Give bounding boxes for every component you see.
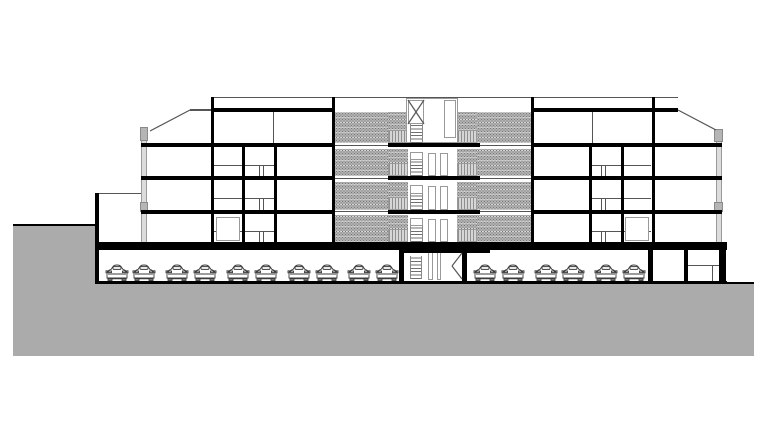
ground-floor-slab <box>95 242 727 250</box>
gallery-slab-line-2b <box>480 211 531 212</box>
gallery-hatch-f2-left <box>335 182 388 210</box>
gallery-hatch-f3-right <box>477 149 531 176</box>
stair-landing-door-f2 <box>410 185 423 194</box>
entry-door-right-wing <box>625 217 649 241</box>
door-jamb-right-f1a <box>601 232 602 242</box>
tower-door-f1a <box>428 219 436 242</box>
balcony-railing-f3-right <box>457 163 477 176</box>
car-icon <box>347 263 371 282</box>
stair-landing-door-f1 <box>410 218 423 226</box>
car-icon <box>105 263 129 282</box>
slab-f4-center <box>388 143 480 147</box>
tower-door-f3b <box>440 153 448 176</box>
storage-divider-line <box>712 266 713 282</box>
slab-f2-left-wing <box>141 210 335 214</box>
tower-wall-right-parking <box>462 250 467 281</box>
car-icon <box>375 263 399 282</box>
slab-f4-right-wing <box>531 143 722 147</box>
wall-left-mid-a <box>242 147 245 242</box>
penthouse-door <box>444 100 456 138</box>
gallery-slab-line-4a <box>335 145 388 146</box>
roof-slope-right <box>678 110 716 130</box>
car-icon <box>561 263 585 282</box>
door-jamb-left-f3a <box>259 166 260 176</box>
gallery-slab-line-3b <box>480 178 531 179</box>
storage-wall-a <box>648 250 653 281</box>
tower-door-f3a <box>428 153 436 176</box>
parapet-block-right <box>714 129 723 142</box>
storage-shelf-line <box>688 265 719 266</box>
wall-left-mid-b <box>274 147 277 242</box>
door-jamb-left-f2b <box>263 199 264 210</box>
gallery-hatch-f1-left-top <box>388 215 408 229</box>
attic-mullion-right <box>592 112 593 143</box>
balcony-railing-f3-left <box>388 163 408 176</box>
slab-f4-left-wing <box>141 143 335 147</box>
wall-right-mid-b <box>621 147 624 242</box>
wall-left-inner <box>211 97 214 243</box>
annex-roof-line <box>99 193 141 194</box>
balcony-railing-f2-right <box>457 197 477 210</box>
car-icon <box>534 263 558 282</box>
parapet-block-left <box>140 127 148 141</box>
door-jamb-right-f1b <box>605 232 606 242</box>
car-icon <box>501 263 525 282</box>
roof-slope-left <box>150 110 190 131</box>
gallery-hatch-f3-left <box>335 149 388 176</box>
balcony-railing-f4-left <box>388 130 408 143</box>
door-jamb-left-f3b <box>263 166 264 176</box>
tower-wall-left-parking <box>399 250 404 281</box>
wall-gallery-left <box>332 97 335 242</box>
car-icon <box>132 263 156 282</box>
storage-wall-b <box>684 250 688 281</box>
car-icon <box>622 263 646 282</box>
gallery-hatch-f2-right <box>477 182 531 210</box>
gallery-hatch-f1-right-top <box>457 215 477 229</box>
door-jamb-right-f3a <box>601 166 602 176</box>
door-jamb-left-f1b <box>263 232 264 242</box>
door-jamb-right-f3b <box>605 166 606 176</box>
car-icon <box>226 263 250 282</box>
wall-right-mid-a <box>589 147 592 242</box>
door-jamb-right-f2a <box>601 199 602 210</box>
tower-door-parking-a <box>428 252 433 280</box>
attic-mullion-left <box>273 112 274 143</box>
gallery-hatch-f3-left-top <box>388 149 408 163</box>
stair-run-f3 <box>410 160 423 176</box>
section-drawing-canvas <box>0 0 768 432</box>
slab-f2-right-wing <box>531 210 722 214</box>
parking-wall-right <box>719 250 726 282</box>
grade-line-left <box>13 224 96 226</box>
top-fascia-right <box>532 108 678 112</box>
car-icon <box>594 263 618 282</box>
stair-run-parking <box>410 256 422 279</box>
gallery-slab-line-4b <box>480 145 531 146</box>
tower-door-parking-b <box>437 252 441 280</box>
tower-door-f1b <box>440 219 448 242</box>
gallery-hatch-f1-right <box>477 215 531 242</box>
door-jamb-left-f2a <box>259 199 260 210</box>
stair-run-f4 <box>410 124 423 143</box>
door-jamb-left-f1a <box>259 232 260 242</box>
parking-door-leaf-b <box>452 266 462 279</box>
wall-gallery-right <box>531 97 534 242</box>
gallery-slab-line-2a <box>335 211 388 212</box>
balcony-railing-f1-left <box>388 229 408 242</box>
grade-line-right <box>727 282 754 284</box>
car-icon <box>254 263 278 282</box>
terrain-mass <box>13 284 754 356</box>
stair-landing-door-f3 <box>410 152 423 160</box>
stair-run-f2 <box>410 194 423 210</box>
balcony-railing-f2-left <box>388 197 408 210</box>
balcony-railing-f1-right <box>457 229 477 242</box>
car-icon <box>473 263 497 282</box>
tower-door-f2b <box>440 186 448 210</box>
stair-run-f1 <box>410 226 423 242</box>
slab-f3-center <box>388 176 480 180</box>
gallery-hatch-f2-left-top <box>388 182 408 197</box>
car-icon <box>165 263 189 282</box>
roof-hatch-panel <box>408 100 424 124</box>
gallery-hatch-f4-left <box>335 112 388 143</box>
door-head-right-f3 <box>589 165 651 166</box>
tower-slab-step <box>402 250 490 253</box>
tower-door-f2a <box>428 186 436 210</box>
slab-f3-right-wing <box>531 176 722 180</box>
door-jamb-right-f2b <box>605 199 606 210</box>
gallery-hatch-f3-right-top <box>457 149 477 163</box>
roof-edge-left <box>190 109 212 111</box>
annex-retaining-wall <box>95 193 99 282</box>
top-fascia-left <box>211 108 335 112</box>
gallery-hatch-f4-right-top <box>458 112 477 130</box>
car-icon <box>287 263 311 282</box>
gallery-slab-line-3a <box>335 178 388 179</box>
parking-floor-slab <box>95 281 727 284</box>
slab-f2-center <box>388 210 480 214</box>
balcony-railing-f4-right <box>457 130 477 143</box>
parking-door-leaf-a <box>452 253 462 266</box>
car-icon <box>315 263 339 282</box>
slab-f3-left-wing <box>141 176 335 180</box>
terrain-left-plateau <box>13 226 95 284</box>
door-head-right-f2 <box>589 198 651 199</box>
wall-right-inner <box>652 97 655 243</box>
entry-door-left-wing <box>216 217 240 241</box>
gallery-hatch-f4-left-top <box>388 112 406 130</box>
car-icon <box>193 263 217 282</box>
gallery-hatch-f2-right-top <box>457 182 477 197</box>
gallery-hatch-f1-left <box>335 215 388 242</box>
gallery-hatch-f4-right <box>477 112 531 143</box>
